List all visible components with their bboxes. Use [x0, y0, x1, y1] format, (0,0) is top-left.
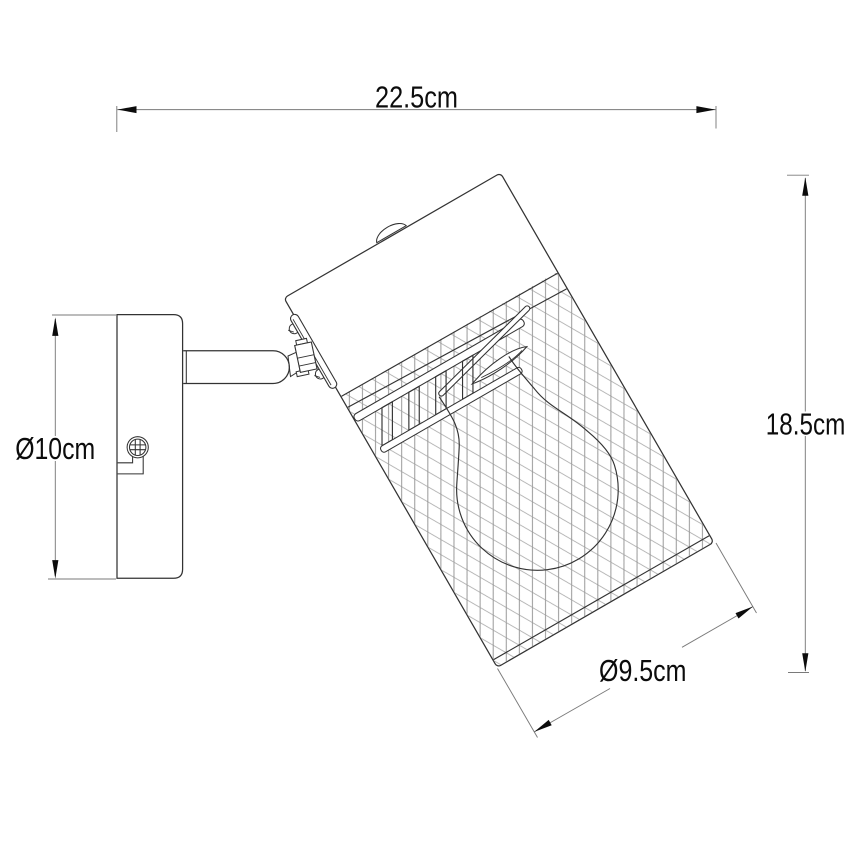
- svg-text:Ø9.5cm: Ø9.5cm: [599, 653, 687, 688]
- svg-text:18.5cm: 18.5cm: [766, 407, 846, 442]
- svg-text:Ø10cm: Ø10cm: [15, 431, 95, 466]
- svg-text:22.5cm: 22.5cm: [375, 80, 458, 115]
